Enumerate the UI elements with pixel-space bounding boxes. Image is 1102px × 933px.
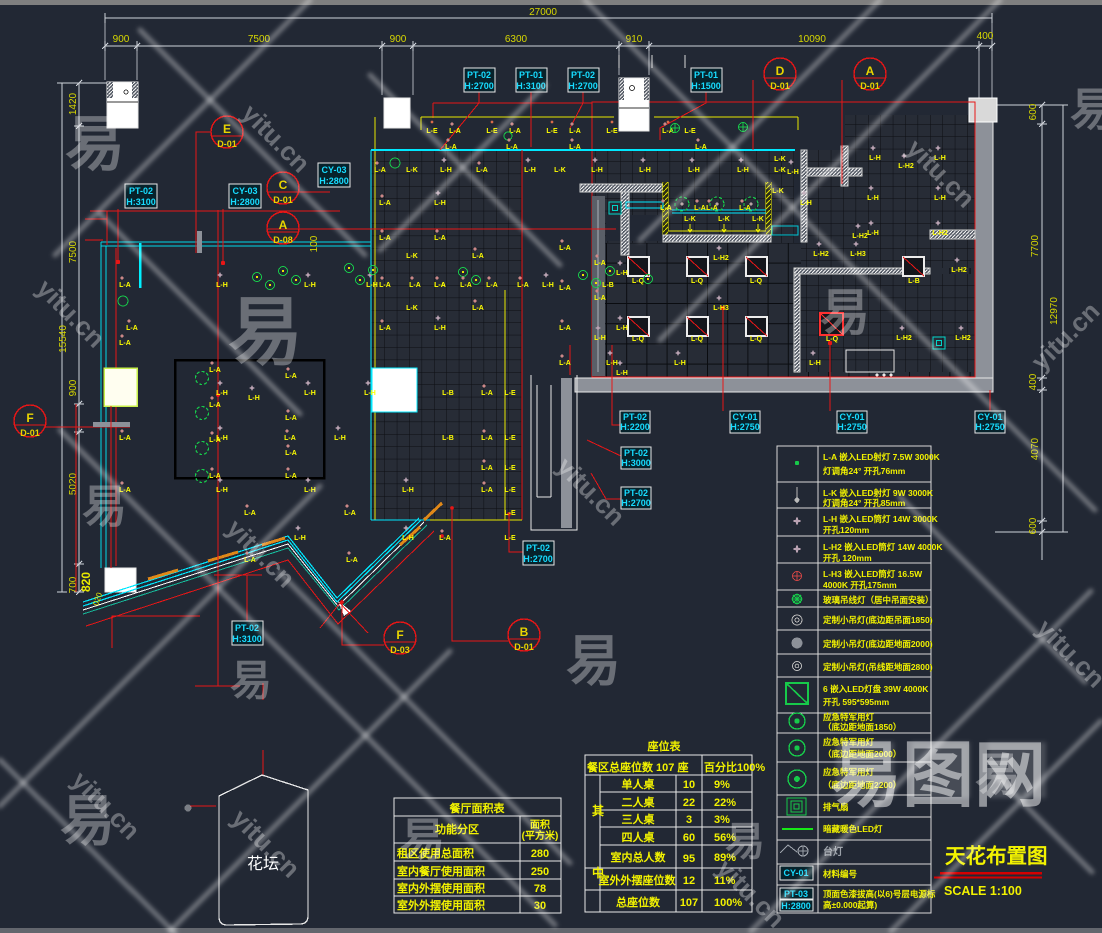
svg-text:900: 900 xyxy=(68,379,79,396)
svg-text:L-A: L-A xyxy=(559,360,571,367)
svg-text:L-A: L-A xyxy=(209,367,221,374)
svg-text:60: 60 xyxy=(683,832,695,844)
svg-text:CY-03: CY-03 xyxy=(232,186,257,196)
svg-text:PT-02: PT-02 xyxy=(624,448,648,458)
svg-text:D-01: D-01 xyxy=(20,428,40,438)
svg-text:PT-02: PT-02 xyxy=(467,70,491,80)
svg-text:L-A: L-A xyxy=(569,144,581,151)
svg-text:L-K: L-K xyxy=(406,167,418,174)
svg-text:L-H: L-H xyxy=(434,200,446,207)
svg-text:L-A 嵌入LED射灯 7.5W 3000K: L-A 嵌入LED射灯 7.5W 3000K xyxy=(823,452,941,462)
svg-text:L-H2: L-H2 xyxy=(713,255,729,262)
svg-text:L-H2: L-H2 xyxy=(852,233,868,240)
svg-text:F: F xyxy=(26,411,33,425)
svg-text:L-H2: L-H2 xyxy=(896,335,912,342)
svg-text:L-H2: L-H2 xyxy=(955,335,971,342)
svg-text:L-E: L-E xyxy=(684,128,696,135)
svg-text:开孔120mm: 开孔120mm xyxy=(823,525,870,535)
svg-text:D-01: D-01 xyxy=(514,642,534,652)
svg-text:7700: 7700 xyxy=(1030,234,1041,257)
svg-text:三人桌: 三人桌 xyxy=(622,812,656,826)
svg-text:座位表: 座位表 xyxy=(647,739,682,753)
svg-text:400: 400 xyxy=(1028,373,1039,390)
svg-text:易: 易 xyxy=(400,814,445,865)
svg-text:室外外摆座位数: 室外外摆座位数 xyxy=(599,873,677,887)
svg-text:L-K: L-K xyxy=(718,216,730,223)
svg-text:D-01: D-01 xyxy=(860,81,880,91)
svg-text:易: 易 xyxy=(820,285,870,341)
svg-text:L-H: L-H xyxy=(440,167,452,174)
svg-text:PT-02: PT-02 xyxy=(129,186,153,196)
svg-text:L-H: L-H xyxy=(594,335,606,342)
svg-text:H:2700: H:2700 xyxy=(568,81,598,91)
svg-text:L-A: L-A xyxy=(379,282,391,289)
svg-text:L-K 嵌入LED射灯 9W 3000K: L-K 嵌入LED射灯 9W 3000K xyxy=(823,488,934,498)
svg-text:L-K: L-K xyxy=(774,167,786,174)
svg-text:H:2700: H:2700 xyxy=(464,81,494,91)
svg-text:L-B: L-B xyxy=(442,435,454,442)
svg-text:（底边距地面1850）: （底边距地面1850） xyxy=(823,722,901,732)
svg-text:L-A: L-A xyxy=(695,144,707,151)
svg-text:CY-01: CY-01 xyxy=(839,412,864,422)
svg-text:玻璃吊线灯（居中吊面安装）: 玻璃吊线灯（居中吊面安装） xyxy=(823,595,934,605)
svg-text:H:2800: H:2800 xyxy=(319,176,349,186)
svg-text:H:3000: H:3000 xyxy=(621,458,651,468)
svg-text:250: 250 xyxy=(531,866,549,878)
svg-text:易: 易 xyxy=(566,630,621,692)
svg-text:百分比100%: 百分比100% xyxy=(704,760,765,774)
svg-text:L-A: L-A xyxy=(559,325,571,332)
svg-text:L-H: L-H xyxy=(216,390,228,397)
svg-text:L-H: L-H xyxy=(294,535,306,542)
svg-text:L-A: L-A xyxy=(209,402,221,409)
svg-text:L-B: L-B xyxy=(442,390,454,397)
svg-text:D: D xyxy=(776,64,785,78)
svg-text:L-A: L-A xyxy=(486,282,498,289)
svg-text:L-H: L-H xyxy=(869,155,881,162)
svg-text:L-H: L-H xyxy=(616,270,628,277)
svg-text:L-H: L-H xyxy=(216,282,228,289)
svg-text:C: C xyxy=(279,178,288,192)
svg-text:L-Q: L-Q xyxy=(750,278,763,285)
svg-text:H:1500: H:1500 xyxy=(691,81,721,91)
svg-text:L-E: L-E xyxy=(606,128,618,135)
svg-text:L-A: L-A xyxy=(379,200,391,207)
svg-text:H:2800: H:2800 xyxy=(230,197,260,207)
svg-text:L-Q: L-Q xyxy=(691,336,704,343)
svg-text:开孔 120mm: 开孔 120mm xyxy=(823,553,872,563)
svg-text:L-B: L-B xyxy=(602,282,614,289)
svg-text:PT-02: PT-02 xyxy=(624,488,648,498)
svg-text:高±0.000起算): 高±0.000起算) xyxy=(823,900,877,910)
svg-text:L-E: L-E xyxy=(504,390,516,397)
svg-text:L-H: L-H xyxy=(364,390,376,397)
svg-text:L-H: L-H xyxy=(248,395,260,402)
svg-text:L-A: L-A xyxy=(285,415,297,422)
svg-text:12: 12 xyxy=(683,875,695,887)
svg-text:L-A: L-A xyxy=(119,282,131,289)
svg-text:易: 易 xyxy=(82,481,127,532)
svg-text:PT-02: PT-02 xyxy=(623,412,647,422)
svg-text:L-K: L-K xyxy=(774,156,786,163)
svg-text:L-A: L-A xyxy=(119,340,131,347)
svg-text:灯调角24° 开孔76mm: 灯调角24° 开孔76mm xyxy=(823,466,906,476)
svg-text:室内餐厅使用面积: 室内餐厅使用面积 xyxy=(397,864,485,878)
svg-text:L-A: L-A xyxy=(379,325,391,332)
svg-text:6300: 6300 xyxy=(505,34,528,45)
svg-text:易: 易 xyxy=(1070,84,1102,135)
svg-text:CY-01: CY-01 xyxy=(732,412,757,422)
svg-text:H:3100: H:3100 xyxy=(232,634,262,644)
svg-text:4000K 开孔175mm: 4000K 开孔175mm xyxy=(823,580,897,590)
svg-text:L-Q: L-Q xyxy=(632,278,645,285)
svg-text:L-H: L-H xyxy=(434,325,446,332)
svg-text:L-H: L-H xyxy=(334,435,346,442)
svg-text:L-K: L-K xyxy=(406,305,418,312)
svg-text:室外外摆使用面积: 室外外摆使用面积 xyxy=(397,898,485,912)
svg-text:L-H: L-H xyxy=(606,360,618,367)
svg-text:D-01: D-01 xyxy=(770,81,790,91)
svg-text:L-A: L-A xyxy=(374,167,386,174)
svg-text:顶面色漆拔高(以6)号层电源标: 顶面色漆拔高(以6)号层电源标 xyxy=(823,889,936,899)
svg-text:9%: 9% xyxy=(714,779,730,791)
svg-text:L-A: L-A xyxy=(481,487,493,494)
svg-text:10090: 10090 xyxy=(798,34,826,45)
svg-text:PT-02: PT-02 xyxy=(526,543,550,553)
svg-text:H:2750: H:2750 xyxy=(730,422,760,432)
svg-text:易: 易 xyxy=(228,290,303,374)
svg-text:L-Q: L-Q xyxy=(691,278,704,285)
svg-text:定制小吊灯(吊线距地面2800): 定制小吊灯(吊线距地面2800) xyxy=(822,662,933,672)
svg-text:L-K: L-K xyxy=(684,216,696,223)
svg-text:L-A: L-A xyxy=(706,205,718,212)
svg-text:L-A: L-A xyxy=(472,305,484,312)
svg-text:PT-01: PT-01 xyxy=(519,70,543,80)
svg-text:600: 600 xyxy=(1028,103,1039,120)
svg-text:900: 900 xyxy=(113,34,130,45)
svg-text:L-A: L-A xyxy=(439,535,451,542)
svg-text:3: 3 xyxy=(686,814,692,826)
svg-text:餐厅面积表: 餐厅面积表 xyxy=(449,801,506,815)
svg-text:室内外摆使用面积: 室内外摆使用面积 xyxy=(397,881,485,895)
svg-text:L-A: L-A xyxy=(449,128,461,135)
svg-text:定制小吊灯(底边距地面2000): 定制小吊灯(底边距地面2000) xyxy=(822,639,933,649)
svg-text:L-H: L-H xyxy=(591,167,603,174)
svg-text:L-A: L-A xyxy=(460,282,472,289)
svg-text:PT-01: PT-01 xyxy=(694,70,718,80)
svg-text:D-08: D-08 xyxy=(273,235,293,245)
svg-text:L-A: L-A xyxy=(569,128,581,135)
svg-text:易: 易 xyxy=(725,820,765,864)
svg-text:L-Q: L-Q xyxy=(750,336,763,343)
svg-text:L-A: L-A xyxy=(285,373,297,380)
svg-text:L-H: L-H xyxy=(402,487,414,494)
svg-text:E: E xyxy=(223,122,231,136)
svg-text:L-A: L-A xyxy=(739,205,751,212)
svg-text:材料编号: 材料编号 xyxy=(822,869,858,879)
svg-text:L-H: L-H xyxy=(674,360,686,367)
svg-text:H:2200: H:2200 xyxy=(620,422,650,432)
svg-text:L-A: L-A xyxy=(594,260,606,267)
svg-text:应急特军用灯: 应急特军用灯 xyxy=(823,712,875,722)
svg-text:L-H: L-H xyxy=(542,282,554,289)
svg-text:L-E: L-E xyxy=(504,465,516,472)
svg-text:其: 其 xyxy=(592,803,604,818)
svg-text:L-H: L-H xyxy=(787,169,799,176)
svg-text:H:2700: H:2700 xyxy=(523,554,553,564)
svg-text:L-A: L-A xyxy=(694,205,706,212)
svg-text:L-H: L-H xyxy=(304,282,316,289)
svg-text:A: A xyxy=(866,64,875,78)
svg-text:L-H: L-H xyxy=(867,195,879,202)
svg-text:B: B xyxy=(520,625,529,639)
svg-text:室内总人数: 室内总人数 xyxy=(611,850,667,864)
svg-text:L-H3: L-H3 xyxy=(850,251,866,258)
svg-text:L-H3 嵌入LED筒灯 16.5W: L-H3 嵌入LED筒灯 16.5W xyxy=(823,569,923,579)
svg-text:D-01: D-01 xyxy=(217,139,237,149)
svg-text:易: 易 xyxy=(230,657,272,704)
svg-text:L-A: L-A xyxy=(284,435,296,442)
svg-text:单人桌: 单人桌 xyxy=(622,777,656,791)
svg-text:L-A: L-A xyxy=(481,435,493,442)
svg-text:L-H: L-H xyxy=(304,390,316,397)
svg-text:易: 易 xyxy=(60,790,115,852)
svg-text:L-A: L-A xyxy=(434,235,446,242)
svg-text:总座位数: 总座位数 xyxy=(616,895,661,909)
svg-text:L-A: L-A xyxy=(481,465,493,472)
svg-text:L-H: L-H xyxy=(639,167,651,174)
svg-text:L-A: L-A xyxy=(209,437,221,444)
svg-text:L-E: L-E xyxy=(546,128,558,135)
svg-text:H:3100: H:3100 xyxy=(126,197,156,207)
svg-text:L-H: L-H xyxy=(366,282,378,289)
svg-text:灯调角24° 开孔85mm: 灯调角24° 开孔85mm xyxy=(823,498,906,508)
svg-text:L-A: L-A xyxy=(346,557,358,564)
svg-text:D-01: D-01 xyxy=(273,195,293,205)
svg-text:易图网: 易图网 xyxy=(830,736,1046,816)
svg-text:L-H: L-H xyxy=(616,370,628,377)
svg-text:400: 400 xyxy=(977,31,994,42)
svg-text:L-E: L-E xyxy=(504,510,516,517)
svg-text:L-A: L-A xyxy=(506,144,518,151)
svg-text:L-A: L-A xyxy=(209,473,221,480)
svg-text:H:2750: H:2750 xyxy=(975,422,1005,432)
svg-text:280: 280 xyxy=(531,848,549,860)
svg-text:L-H: L-H xyxy=(737,167,749,174)
svg-text:L-H: L-H xyxy=(616,325,628,332)
svg-text:CY-03: CY-03 xyxy=(321,165,346,175)
svg-text:L-Q: L-Q xyxy=(632,336,645,343)
svg-text:L-K: L-K xyxy=(752,216,764,223)
svg-text:L-H3: L-H3 xyxy=(713,305,729,312)
svg-text:L-H2: L-H2 xyxy=(813,251,829,258)
svg-text:易: 易 xyxy=(65,111,125,178)
svg-text:L-K: L-K xyxy=(406,253,418,260)
svg-text:L-K: L-K xyxy=(554,167,566,174)
svg-text:78: 78 xyxy=(534,883,546,895)
svg-text:L-H: L-H xyxy=(809,360,821,367)
svg-text:L-A: L-A xyxy=(285,473,297,480)
svg-text:L-A: L-A xyxy=(409,282,421,289)
svg-text:L-A: L-A xyxy=(119,435,131,442)
svg-text:L-A: L-A xyxy=(285,450,297,457)
svg-text:SCALE 1:100: SCALE 1:100 xyxy=(944,884,1022,898)
svg-text:L-A: L-A xyxy=(481,390,493,397)
svg-text:L-A: L-A xyxy=(594,295,606,302)
svg-text:820: 820 xyxy=(79,572,93,592)
svg-text:PT-02: PT-02 xyxy=(571,70,595,80)
svg-text:L-H2: L-H2 xyxy=(951,267,967,274)
svg-text:5020: 5020 xyxy=(68,472,79,495)
svg-text:二人桌: 二人桌 xyxy=(622,795,656,809)
svg-text:95: 95 xyxy=(683,853,695,865)
svg-text:L-A: L-A xyxy=(344,510,356,517)
svg-text:L-H2 嵌入LED筒灯 14W 4000K: L-H2 嵌入LED筒灯 14W 4000K xyxy=(823,542,943,552)
svg-text:L-A: L-A xyxy=(472,253,484,260)
svg-text:L-A: L-A xyxy=(126,325,138,332)
svg-text:L-H: L-H xyxy=(688,167,700,174)
svg-text:107: 107 xyxy=(680,897,698,909)
svg-text:L-A: L-A xyxy=(517,282,529,289)
svg-text:开孔 595*595mm: 开孔 595*595mm xyxy=(823,697,890,707)
svg-text:四人桌: 四人桌 xyxy=(622,830,656,844)
svg-text:F: F xyxy=(396,628,403,642)
svg-text:L-A: L-A xyxy=(559,245,571,252)
svg-text:900: 900 xyxy=(390,34,407,45)
svg-text:L-H: L-H xyxy=(524,167,536,174)
svg-text:L-E: L-E xyxy=(504,487,516,494)
svg-text:6 嵌入LED灯盘 39W 4000K: 6 嵌入LED灯盘 39W 4000K xyxy=(823,684,929,694)
svg-text:L-H: L-H xyxy=(867,230,879,237)
svg-text:L-A: L-A xyxy=(434,282,446,289)
svg-text:H:2750: H:2750 xyxy=(837,422,867,432)
svg-text:L-A: L-A xyxy=(559,285,571,292)
svg-text:10: 10 xyxy=(683,779,695,791)
svg-text:600: 600 xyxy=(1028,517,1039,534)
svg-text:A: A xyxy=(279,218,288,232)
svg-text:27000: 27000 xyxy=(529,7,557,18)
svg-text:L-A: L-A xyxy=(476,167,488,174)
svg-text:L-H: L-H xyxy=(216,487,228,494)
svg-text:22: 22 xyxy=(683,797,695,809)
svg-text:L-H: L-H xyxy=(402,535,414,542)
svg-text:22%: 22% xyxy=(714,797,736,809)
svg-text:100: 100 xyxy=(309,235,320,252)
svg-text:L-H2: L-H2 xyxy=(932,230,948,237)
svg-text:L-B: L-B xyxy=(908,278,920,285)
svg-text:定制小吊灯(底边距吊面1850): 定制小吊灯(底边距吊面1850) xyxy=(822,615,933,625)
svg-text:L-E: L-E xyxy=(504,435,516,442)
svg-text:餐区总座位数 107 座: 餐区总座位数 107 座 xyxy=(586,760,688,774)
svg-text:L-E: L-E xyxy=(504,535,516,542)
svg-text:700: 700 xyxy=(68,576,79,593)
svg-text:D-03: D-03 xyxy=(390,645,410,655)
